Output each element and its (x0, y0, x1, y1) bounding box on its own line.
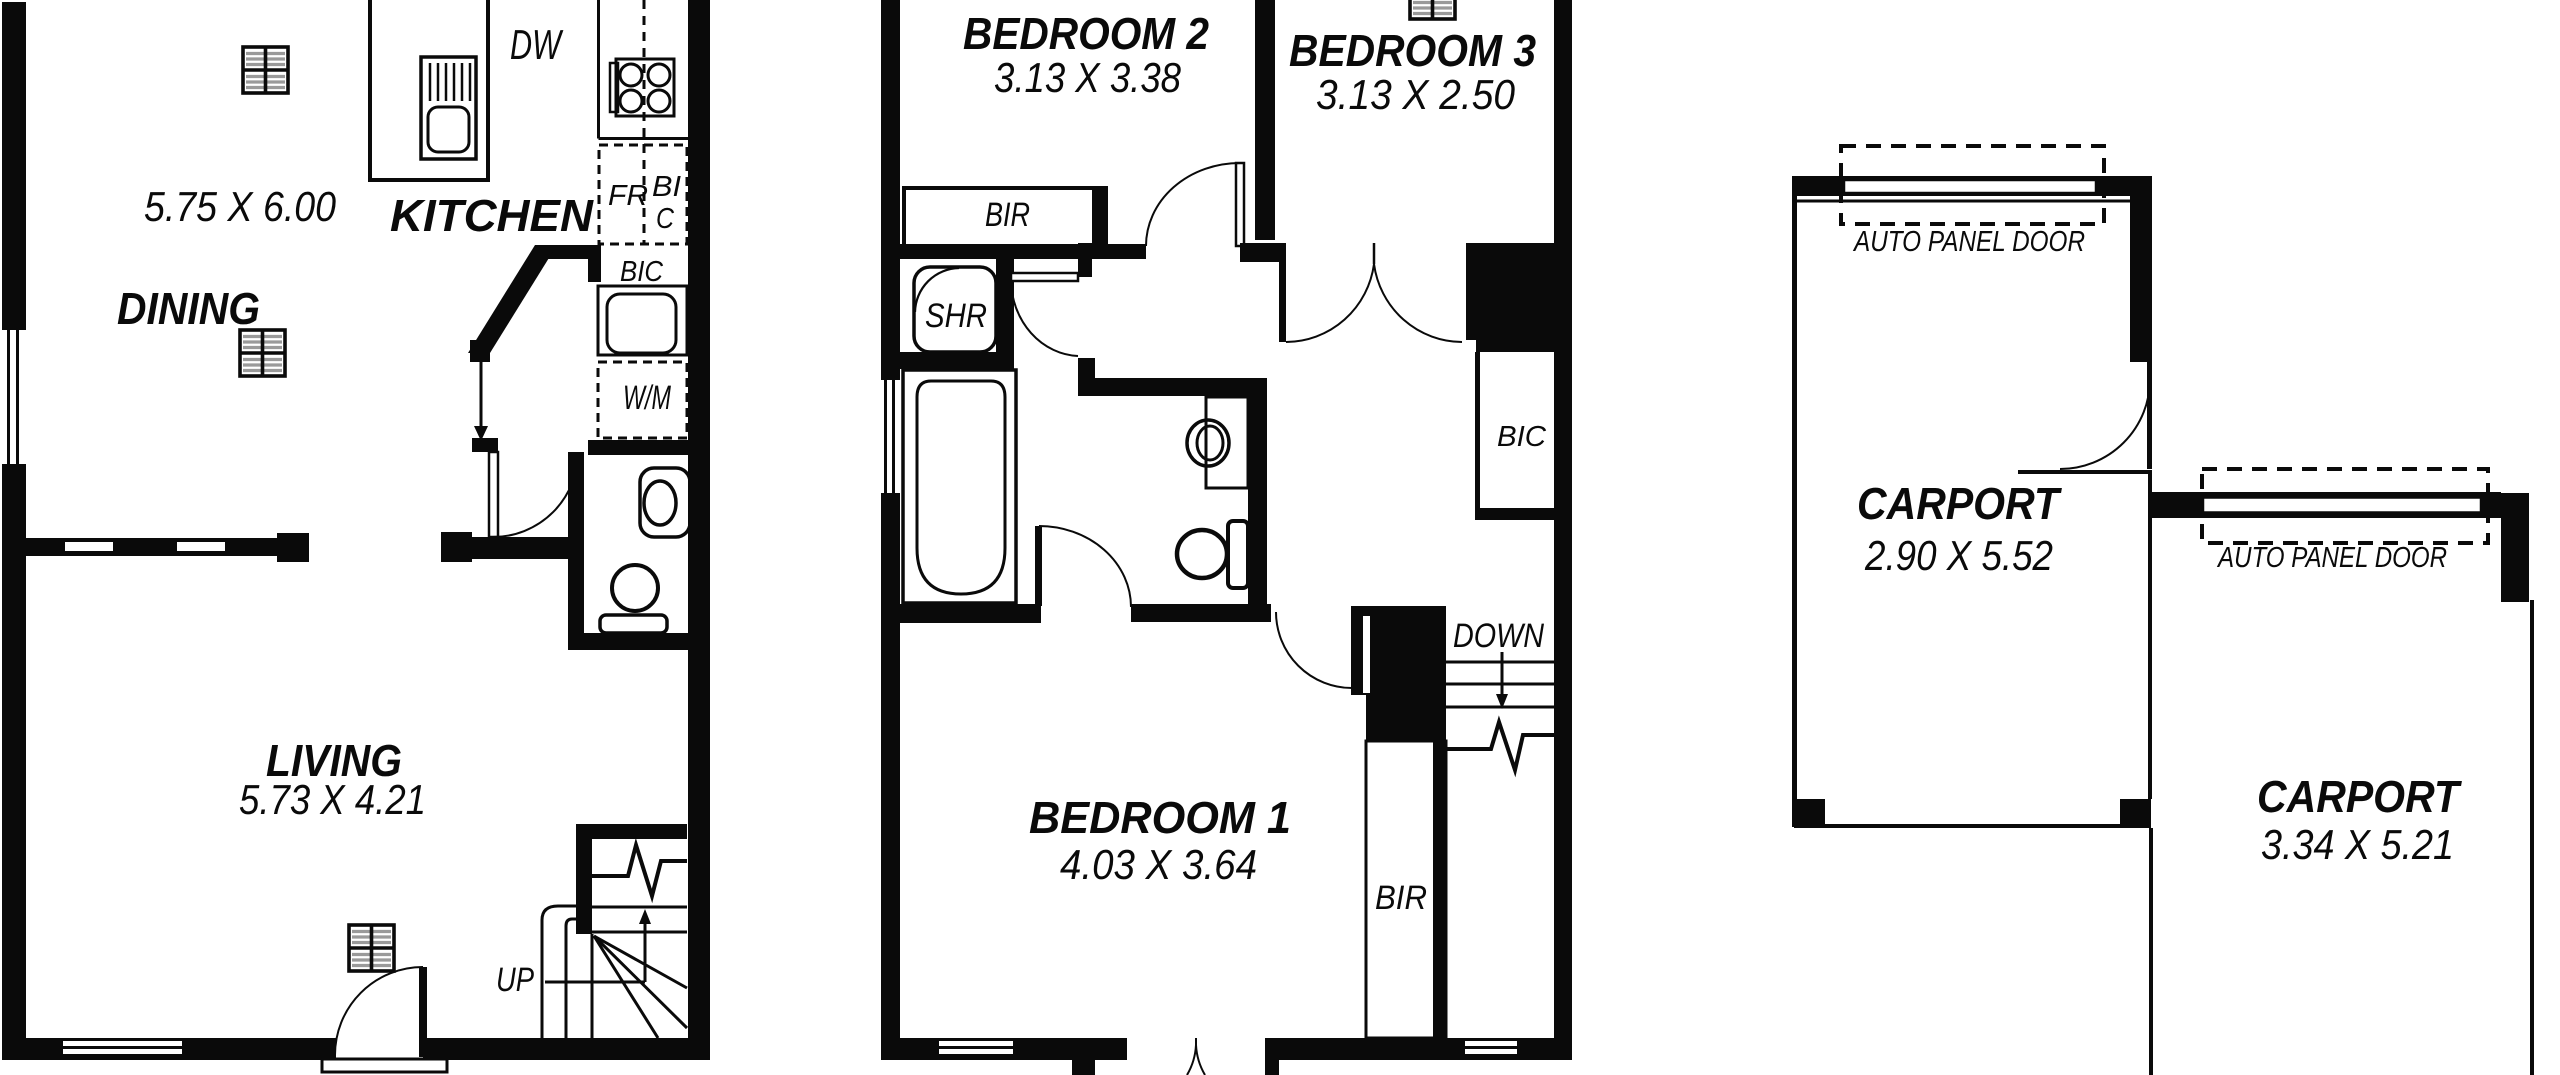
svg-text:BIR: BIR (985, 196, 1030, 234)
svg-text:BEDROOM 1: BEDROOM 1 (1029, 792, 1291, 843)
svg-text:AUTO PANEL DOOR: AUTO PANEL DOOR (2216, 542, 2447, 574)
svg-text:W/M: W/M (623, 379, 671, 417)
svg-text:DOWN: DOWN (1453, 617, 1544, 655)
svg-text:BIC: BIC (1497, 421, 1547, 453)
svg-text:3.13 X 2.50: 3.13 X 2.50 (1316, 71, 1516, 118)
svg-text:4.03 X 3.64: 4.03 X 3.64 (1060, 841, 1257, 888)
svg-text:BIC: BIC (620, 256, 664, 288)
svg-text:5.73 X 4.21: 5.73 X 4.21 (239, 776, 426, 823)
svg-text:DINING: DINING (117, 283, 260, 334)
svg-text:BIR: BIR (1375, 879, 1427, 917)
svg-text:5.75 X 6.00: 5.75 X 6.00 (144, 183, 337, 230)
svg-text:BI: BI (652, 171, 681, 203)
svg-text:AUTO PANEL DOOR: AUTO PANEL DOOR (1852, 226, 2085, 258)
svg-text:SHR: SHR (925, 297, 987, 335)
svg-text:CARPORT: CARPORT (2257, 771, 2462, 822)
svg-text:BEDROOM 3: BEDROOM 3 (1289, 25, 1536, 76)
svg-text:CARPORT: CARPORT (1857, 478, 2062, 529)
svg-text:C: C (656, 203, 675, 235)
svg-text:DW: DW (510, 21, 563, 68)
svg-text:KITCHEN: KITCHEN (390, 190, 595, 241)
svg-text:FR: FR (608, 180, 648, 212)
svg-text:2.90 X 5.52: 2.90 X 5.52 (1864, 532, 2053, 579)
svg-text:3.13 X 3.38: 3.13 X 3.38 (994, 54, 1182, 101)
svg-text:BEDROOM 2: BEDROOM 2 (963, 8, 1209, 59)
svg-text:3.34 X 5.21: 3.34 X 5.21 (2261, 821, 2454, 868)
svg-text:UP: UP (496, 961, 534, 999)
